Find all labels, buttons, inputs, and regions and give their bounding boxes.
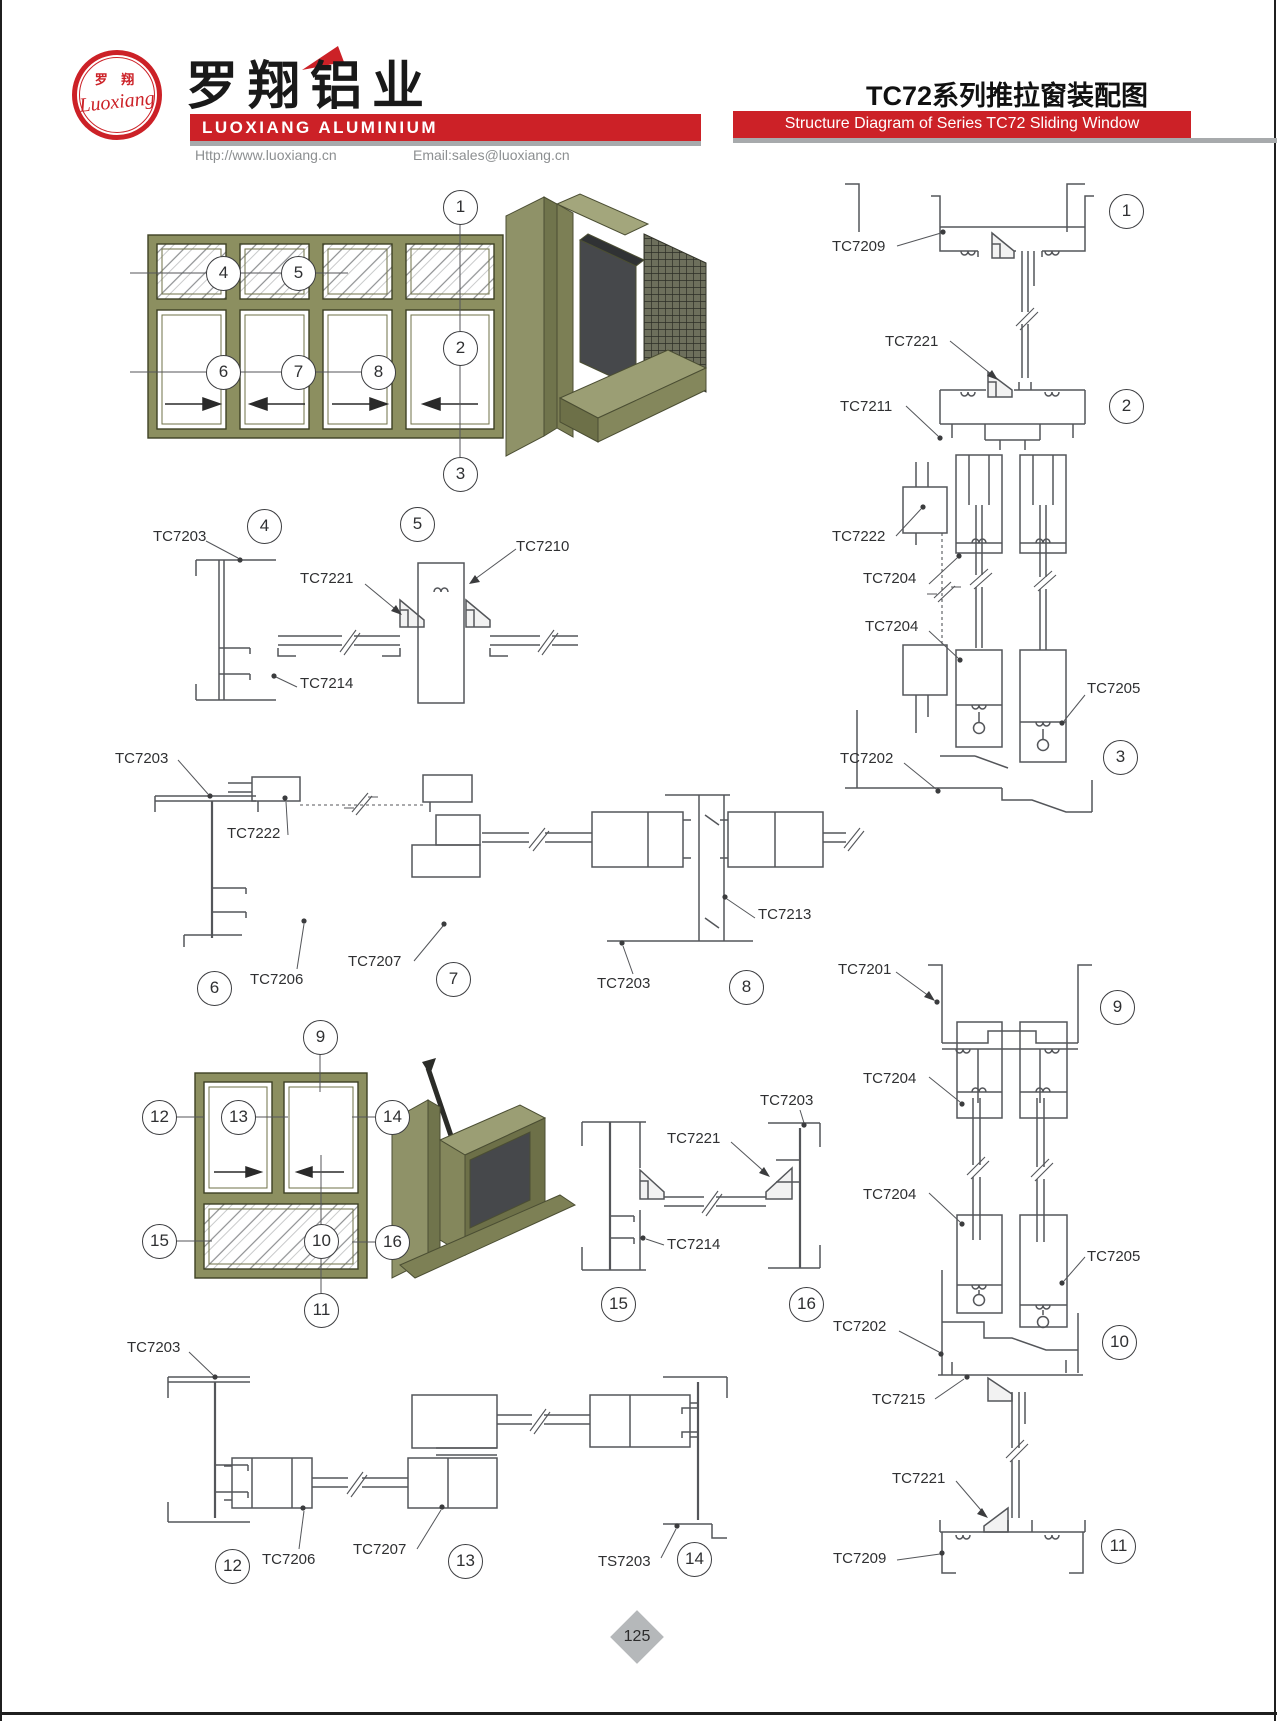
part-label: TC7213: [758, 906, 811, 923]
part-label: TC7203: [115, 750, 168, 767]
section-12-13-14: [168, 1377, 727, 1538]
email-address: Email:sales@luoxiang.cn: [413, 147, 570, 163]
company-name-en: LUOXIANG ALUMINIUM: [190, 114, 701, 138]
part-label: TS7203: [598, 1553, 651, 1570]
part-label: TC7215: [872, 1391, 925, 1408]
callout: 11: [304, 1293, 339, 1328]
part-label: TC7222: [227, 825, 280, 842]
callout: 11: [1101, 1529, 1136, 1564]
callout: 13: [221, 1100, 256, 1135]
part-label: TC7203: [760, 1092, 813, 1109]
website-url: Http://www.luoxiang.cn: [195, 147, 337, 163]
part-label: TC7207: [348, 953, 401, 970]
part-label: TC7211: [840, 398, 892, 415]
part-label: TC7206: [262, 1551, 315, 1568]
section-4-5: [196, 560, 578, 703]
technical-drawings: [0, 0, 1277, 1721]
part-label: TC7221: [892, 1470, 945, 1487]
callout: 16: [375, 1225, 410, 1260]
part-label: TC7203: [153, 528, 206, 545]
callout: 13: [448, 1544, 483, 1579]
render-3d-bottom: [392, 1058, 575, 1278]
window-elevation-2: [195, 1073, 367, 1278]
callout: 3: [443, 457, 478, 492]
part-label: TC7222: [832, 528, 885, 545]
header-rule-left: [190, 141, 701, 146]
part-label: TC7210: [516, 538, 569, 555]
callout: 7: [436, 962, 471, 997]
callout: 12: [142, 1100, 177, 1135]
callout: 8: [729, 970, 764, 1005]
part-label: TC7221: [300, 570, 353, 587]
part-label: TC7214: [300, 675, 353, 692]
part-label: TC7205: [1087, 680, 1140, 697]
callout: 8: [361, 355, 396, 390]
section-9-10-11: [928, 965, 1092, 1573]
callout: 15: [601, 1287, 636, 1322]
callout: 4: [206, 256, 241, 291]
part-label: TC7221: [667, 1130, 720, 1147]
callout: 2: [1109, 389, 1144, 424]
callout: 5: [281, 256, 316, 291]
section-1-2-3: [845, 184, 1094, 812]
company-name-banner: LUOXIANG ALUMINIUM: [190, 114, 701, 141]
part-label: TC7204: [863, 1070, 916, 1087]
company-logo: 罗 翔 Luoxiang: [72, 50, 162, 140]
callout: 14: [677, 1542, 712, 1577]
part-label: TC7209: [833, 1550, 886, 1567]
page-title-en: Structure Diagram of Series TC72 Sliding…: [733, 111, 1191, 133]
page-title-banner: Structure Diagram of Series TC72 Sliding…: [733, 111, 1191, 138]
catalog-page: 罗 翔 Luoxiang 罗翔铝业 LUOXIANG ALUMINIUM TC7…: [0, 0, 1277, 1721]
part-label: TC7206: [250, 971, 303, 988]
part-label: TC7221: [885, 333, 938, 350]
callout: 9: [1100, 990, 1135, 1025]
callout: 10: [304, 1224, 339, 1259]
part-label: TC7204: [863, 570, 916, 587]
callout: 5: [400, 507, 435, 542]
callout: 4: [247, 509, 282, 544]
part-label: TC7204: [865, 618, 918, 635]
part-label: TC7214: [667, 1236, 720, 1253]
company-name-cn: 罗翔铝业: [186, 44, 434, 119]
part-label: TC7202: [833, 1318, 886, 1335]
callout: 10: [1102, 1325, 1137, 1360]
callout: 6: [197, 971, 232, 1006]
page-number: 125: [618, 1618, 656, 1656]
callout: 16: [789, 1287, 824, 1322]
callout: 3: [1103, 740, 1138, 775]
callout: 7: [281, 355, 316, 390]
part-label: TC7202: [840, 750, 893, 767]
callout: 14: [375, 1100, 410, 1135]
part-label: TC7203: [597, 975, 650, 992]
page-title-cn: TC72系列推拉窗装配图: [866, 74, 1148, 113]
part-label: TC7203: [127, 1339, 180, 1356]
part-label: TC7209: [832, 238, 885, 255]
part-label: TC7204: [863, 1186, 916, 1203]
callout: 9: [303, 1020, 338, 1055]
callout: 15: [142, 1224, 177, 1259]
part-label: TC7205: [1087, 1248, 1140, 1265]
callout: 1: [1109, 194, 1144, 229]
header-rule-right: [733, 138, 1277, 143]
part-label: TC7207: [353, 1541, 406, 1558]
callout: 12: [215, 1549, 250, 1584]
page-number-diamond: 125: [610, 1610, 664, 1664]
logo-cn-text: 罗 翔: [77, 69, 157, 88]
callout: 6: [206, 355, 241, 390]
callout: 1: [443, 190, 478, 225]
part-label: TC7201: [838, 961, 891, 978]
callout: 2: [443, 331, 478, 366]
